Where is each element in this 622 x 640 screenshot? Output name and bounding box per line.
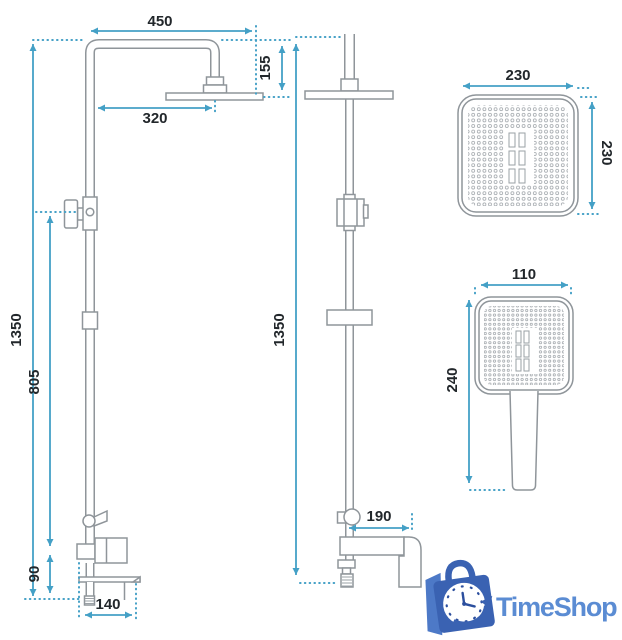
shower-arm-connector <box>207 77 224 85</box>
mixer-shelf <box>79 577 140 582</box>
diverter-knob <box>344 509 360 525</box>
dim-label-240: 240 <box>444 367 461 392</box>
dim-side-total-height: 1350 <box>271 44 296 575</box>
dim-label-90: 90 <box>26 566 43 583</box>
dim-front-riser-height: 805 <box>26 216 50 546</box>
dim-overhead-width: 230 <box>463 67 573 86</box>
mixer-front <box>77 538 140 605</box>
dim-label-230-top: 230 <box>505 67 530 84</box>
dim-front-mixer-height: 90 <box>26 555 50 593</box>
dim-label-110: 110 <box>512 266 536 283</box>
front-view-figure <box>65 44 264 605</box>
dim-front-head-height: 155 <box>257 46 282 90</box>
dim-label-1350-side: 1350 <box>271 313 288 346</box>
overhead-shower-side <box>305 91 393 99</box>
overhead-shower-top-view <box>458 95 578 216</box>
shopping-bag-clock-icon <box>419 559 497 637</box>
pole-collar <box>83 312 98 329</box>
dim-label-190: 190 <box>366 508 391 525</box>
dim-label-805: 805 <box>26 369 43 394</box>
dim-label-450: 450 <box>147 13 172 30</box>
soap-dish-side <box>327 310 372 325</box>
dim-label-155: 155 <box>257 55 274 80</box>
dim-front-head-reach: 320 <box>98 108 212 127</box>
slider-holder-side <box>337 195 368 231</box>
side-view-figure <box>305 34 421 587</box>
dim-overhead-depth: 230 <box>592 102 615 209</box>
dim-front-top-width: 450 <box>91 13 252 31</box>
dim-label-140: 140 <box>95 596 120 613</box>
timeshop-logo: TimeShop <box>419 559 617 637</box>
dim-label-1350-front: 1350 <box>8 313 25 346</box>
shower-set-diagram: 450 155 320 1350 805 90 140 <box>0 0 622 640</box>
dim-handshower-length: 240 <box>444 300 469 483</box>
logo-wordmark: TimeShop <box>496 592 617 622</box>
dim-label-320: 320 <box>142 110 167 127</box>
overhead-shower-front <box>166 93 263 100</box>
hand-shower-figure <box>475 297 573 490</box>
dim-label-230-right: 230 <box>598 140 615 165</box>
dim-front-total-height: 1350 <box>8 44 33 596</box>
slider-holder-front <box>65 197 98 230</box>
dim-handshower-width: 110 <box>481 266 568 285</box>
technical-drawing-canvas: 450 155 320 1350 805 90 140 <box>0 0 622 640</box>
